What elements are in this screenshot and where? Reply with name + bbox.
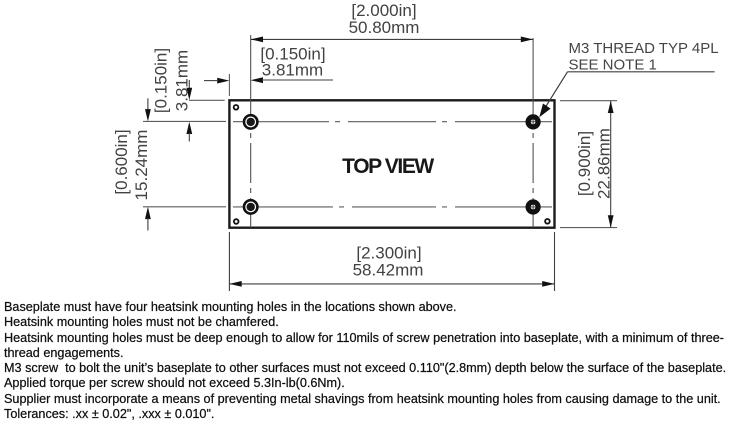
svg-text:M3 THREAD TYP 4PL: M3 THREAD TYP 4PL	[569, 40, 719, 57]
svg-text:3.81mm: 3.81mm	[262, 60, 323, 79]
svg-text:[0.150in]: [0.150in]	[152, 48, 171, 113]
svg-text:[0.600in]: [0.600in]	[112, 129, 131, 194]
svg-text:TOP VIEW: TOP VIEW	[342, 155, 434, 178]
svg-text:[0.900in]: [0.900in]	[575, 131, 594, 196]
svg-text:SEE NOTE 1: SEE NOTE 1	[569, 57, 657, 74]
svg-text:50.80mm: 50.80mm	[349, 18, 420, 37]
svg-text:3.81mm: 3.81mm	[173, 50, 192, 111]
svg-text:22.86mm: 22.86mm	[595, 128, 614, 199]
svg-text:58.42mm: 58.42mm	[353, 260, 424, 279]
svg-text:15.24mm: 15.24mm	[132, 130, 151, 201]
